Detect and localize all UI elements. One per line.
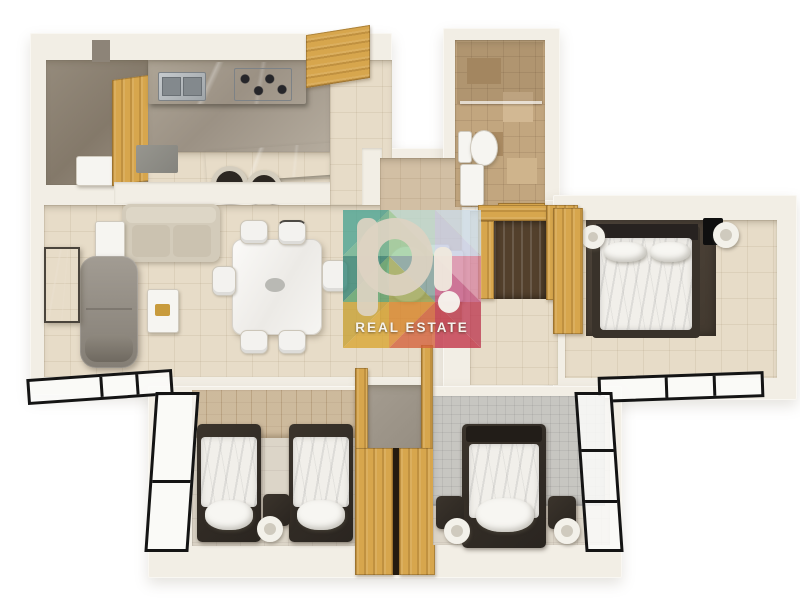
shower-area-shade bbox=[457, 42, 543, 104]
chaise-end bbox=[85, 334, 133, 362]
stove bbox=[234, 68, 292, 101]
logo-p-bowl-icon bbox=[357, 218, 433, 296]
sofa-back bbox=[126, 207, 216, 223]
master-wardrobe bbox=[553, 208, 583, 334]
twin-bed-pillow bbox=[297, 500, 345, 530]
wardrobe bbox=[355, 448, 393, 575]
dining-chair bbox=[278, 220, 306, 245]
sink-basin-left bbox=[162, 77, 181, 96]
window-mullion bbox=[581, 449, 613, 452]
wall-artwork bbox=[44, 247, 80, 323]
window-mullion bbox=[99, 377, 103, 397]
kitchen-tall-cabinet bbox=[136, 145, 178, 173]
chaise-seam bbox=[86, 308, 132, 310]
corridor-jamb bbox=[421, 345, 433, 450]
wall-niche bbox=[92, 40, 110, 62]
dining-chair bbox=[278, 330, 306, 354]
wall-sconce bbox=[713, 222, 739, 248]
double-bed-pillow bbox=[476, 498, 534, 532]
floor-lamp bbox=[257, 516, 283, 542]
gold-decor bbox=[155, 304, 170, 316]
shower-glass-screen bbox=[460, 101, 542, 104]
walk-in-closet-interior bbox=[494, 221, 546, 299]
foyer-wall bbox=[362, 148, 382, 206]
master-pillow bbox=[604, 242, 646, 262]
logo-exclamation-bar-icon bbox=[434, 247, 452, 291]
sink-basin-right bbox=[183, 77, 202, 96]
wing-corridor-floor bbox=[368, 385, 421, 450]
watermark-label: REAL ESTATE bbox=[343, 320, 481, 335]
double-headboard bbox=[466, 426, 542, 442]
floor-lamp bbox=[554, 518, 580, 544]
coffee-table bbox=[147, 289, 179, 333]
bathroom-vanity bbox=[460, 164, 484, 206]
wardrobe bbox=[399, 448, 435, 575]
entry-door bbox=[306, 25, 370, 88]
window-mullion bbox=[585, 500, 617, 503]
washer bbox=[76, 156, 114, 186]
floor-plan-render: p! REAL ESTATE bbox=[0, 0, 800, 600]
master-pillow bbox=[650, 242, 690, 262]
twin-bed-mattress bbox=[201, 437, 257, 507]
dining-table bbox=[232, 239, 322, 335]
logo-exclamation-dot-icon bbox=[438, 291, 460, 313]
wall-sconce bbox=[581, 225, 605, 249]
bathroom-toilet-bowl bbox=[470, 130, 498, 166]
beige-sofa bbox=[122, 204, 220, 262]
tile-patch bbox=[507, 158, 537, 184]
twin-bed-mattress bbox=[293, 437, 349, 507]
table-decor-bowl bbox=[265, 278, 285, 292]
window-mullion bbox=[152, 480, 190, 483]
window-mullion bbox=[136, 374, 140, 394]
dining-chair bbox=[240, 220, 268, 244]
kitchen-sink bbox=[158, 72, 206, 101]
sofa-cushion bbox=[132, 225, 170, 257]
window-mullion bbox=[665, 377, 669, 397]
watermark: p! REAL ESTATE bbox=[343, 210, 481, 348]
twin-bed-pillow bbox=[205, 500, 253, 530]
floor-lamp bbox=[444, 518, 470, 544]
corridor-jamb bbox=[355, 368, 368, 450]
window-mullion bbox=[713, 376, 717, 396]
dining-chair bbox=[212, 266, 236, 296]
sofa-cushion bbox=[173, 225, 211, 257]
dining-chair bbox=[240, 330, 268, 354]
kitchen-half-wall bbox=[114, 182, 334, 204]
gray-chaise-sofa bbox=[80, 256, 138, 368]
